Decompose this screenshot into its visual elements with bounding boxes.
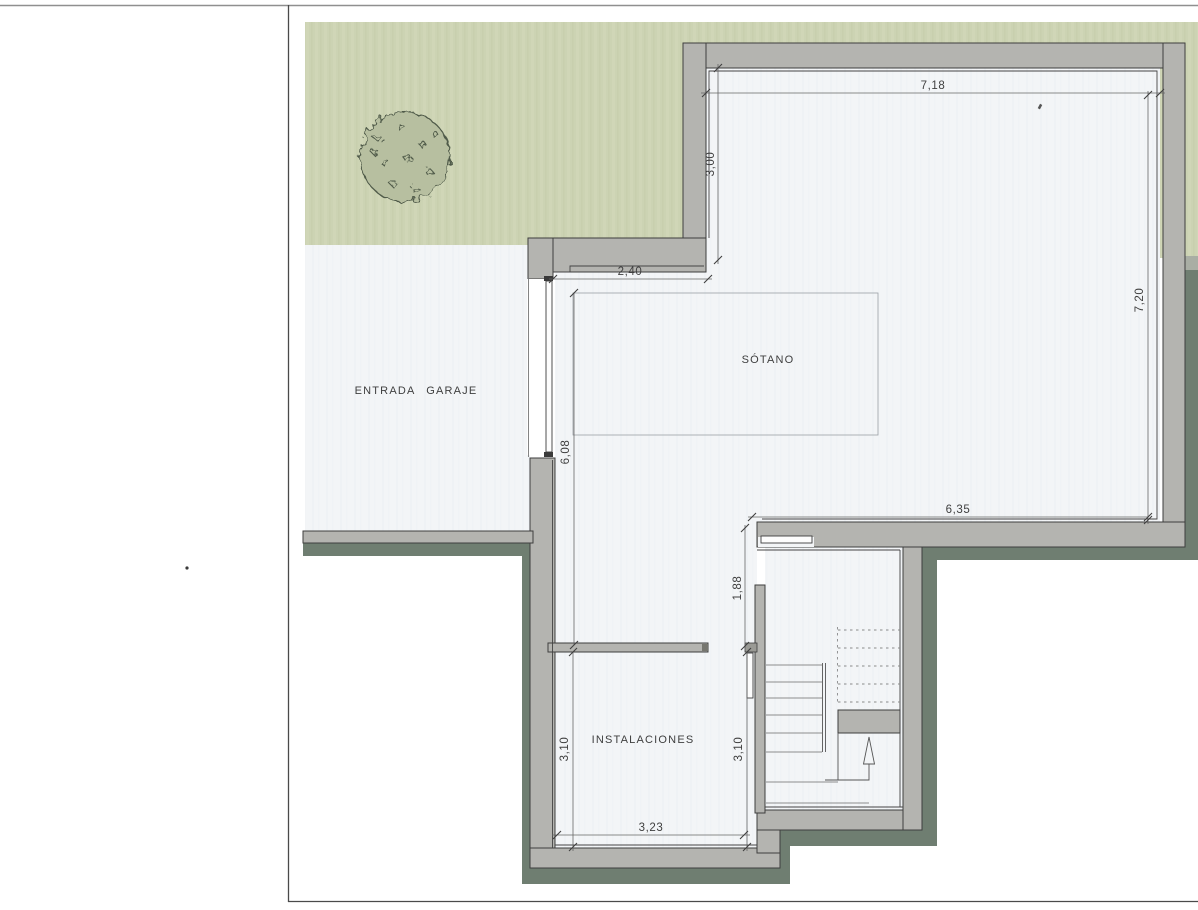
garage-door-hinge-bottom — [544, 452, 553, 457]
room-label-garage: ENTRADA GARAJE — [355, 385, 478, 397]
wall-west-lower — [530, 458, 555, 868]
sotano-floor — [706, 68, 1160, 522]
wall-sotano-south — [757, 522, 1185, 547]
stairwell-floor — [765, 547, 903, 810]
wall-interior-vertical — [755, 585, 765, 813]
dim-text-top-width: 7,18 — [921, 80, 946, 92]
room-label-sotano: SÓTANO — [742, 353, 795, 366]
wall-south-utilities — [530, 848, 780, 868]
dim-text-stair-door: 1,88 — [732, 576, 744, 601]
dim-text-garage-link: 2,40 — [618, 266, 643, 278]
wall-east-stair — [903, 547, 922, 830]
dim-text-hall-height: 6,08 — [560, 440, 572, 465]
wall-garage-jamb — [528, 238, 553, 279]
floor-plan-drawing: 7,18 3,00 2,40 7,20 6,08 6,35 1,88 3,10 … — [0, 0, 1198, 910]
dim-text-left-upper: 3,00 — [705, 152, 717, 177]
wall-east — [1163, 43, 1185, 547]
garage-edge-band — [303, 531, 533, 543]
dim-text-utilities-width: 3,23 — [639, 822, 664, 834]
room-label-utilities: INSTALACIONES — [592, 734, 695, 746]
stair-door-leaf — [761, 536, 812, 543]
garage-door-leaf — [546, 281, 552, 452]
wall-north — [683, 43, 1185, 68]
wall-west-upper — [683, 43, 706, 258]
tree-icon — [360, 112, 450, 202]
stair-door — [758, 536, 814, 547]
wall-end-cap — [702, 644, 708, 651]
wall-step — [757, 830, 780, 853]
wall-south-stair — [757, 810, 922, 830]
scanned-floor-plan-page: 7,18 3,00 2,40 7,20 6,08 6,35 1,88 3,10 … — [0, 0, 1198, 910]
stair-landing-wall — [838, 710, 900, 733]
dim-text-right-height: 7,20 — [1134, 288, 1146, 313]
hall-utilities-floor — [555, 272, 757, 850]
dim-text-sotano-bottom: 6,35 — [946, 504, 971, 516]
dim-text-utilities-left: 3,10 — [559, 737, 571, 762]
dim-text-utilities-right: 3,10 — [733, 737, 745, 762]
utilities-door-leaf — [747, 653, 753, 698]
garage-door — [527, 276, 555, 457]
